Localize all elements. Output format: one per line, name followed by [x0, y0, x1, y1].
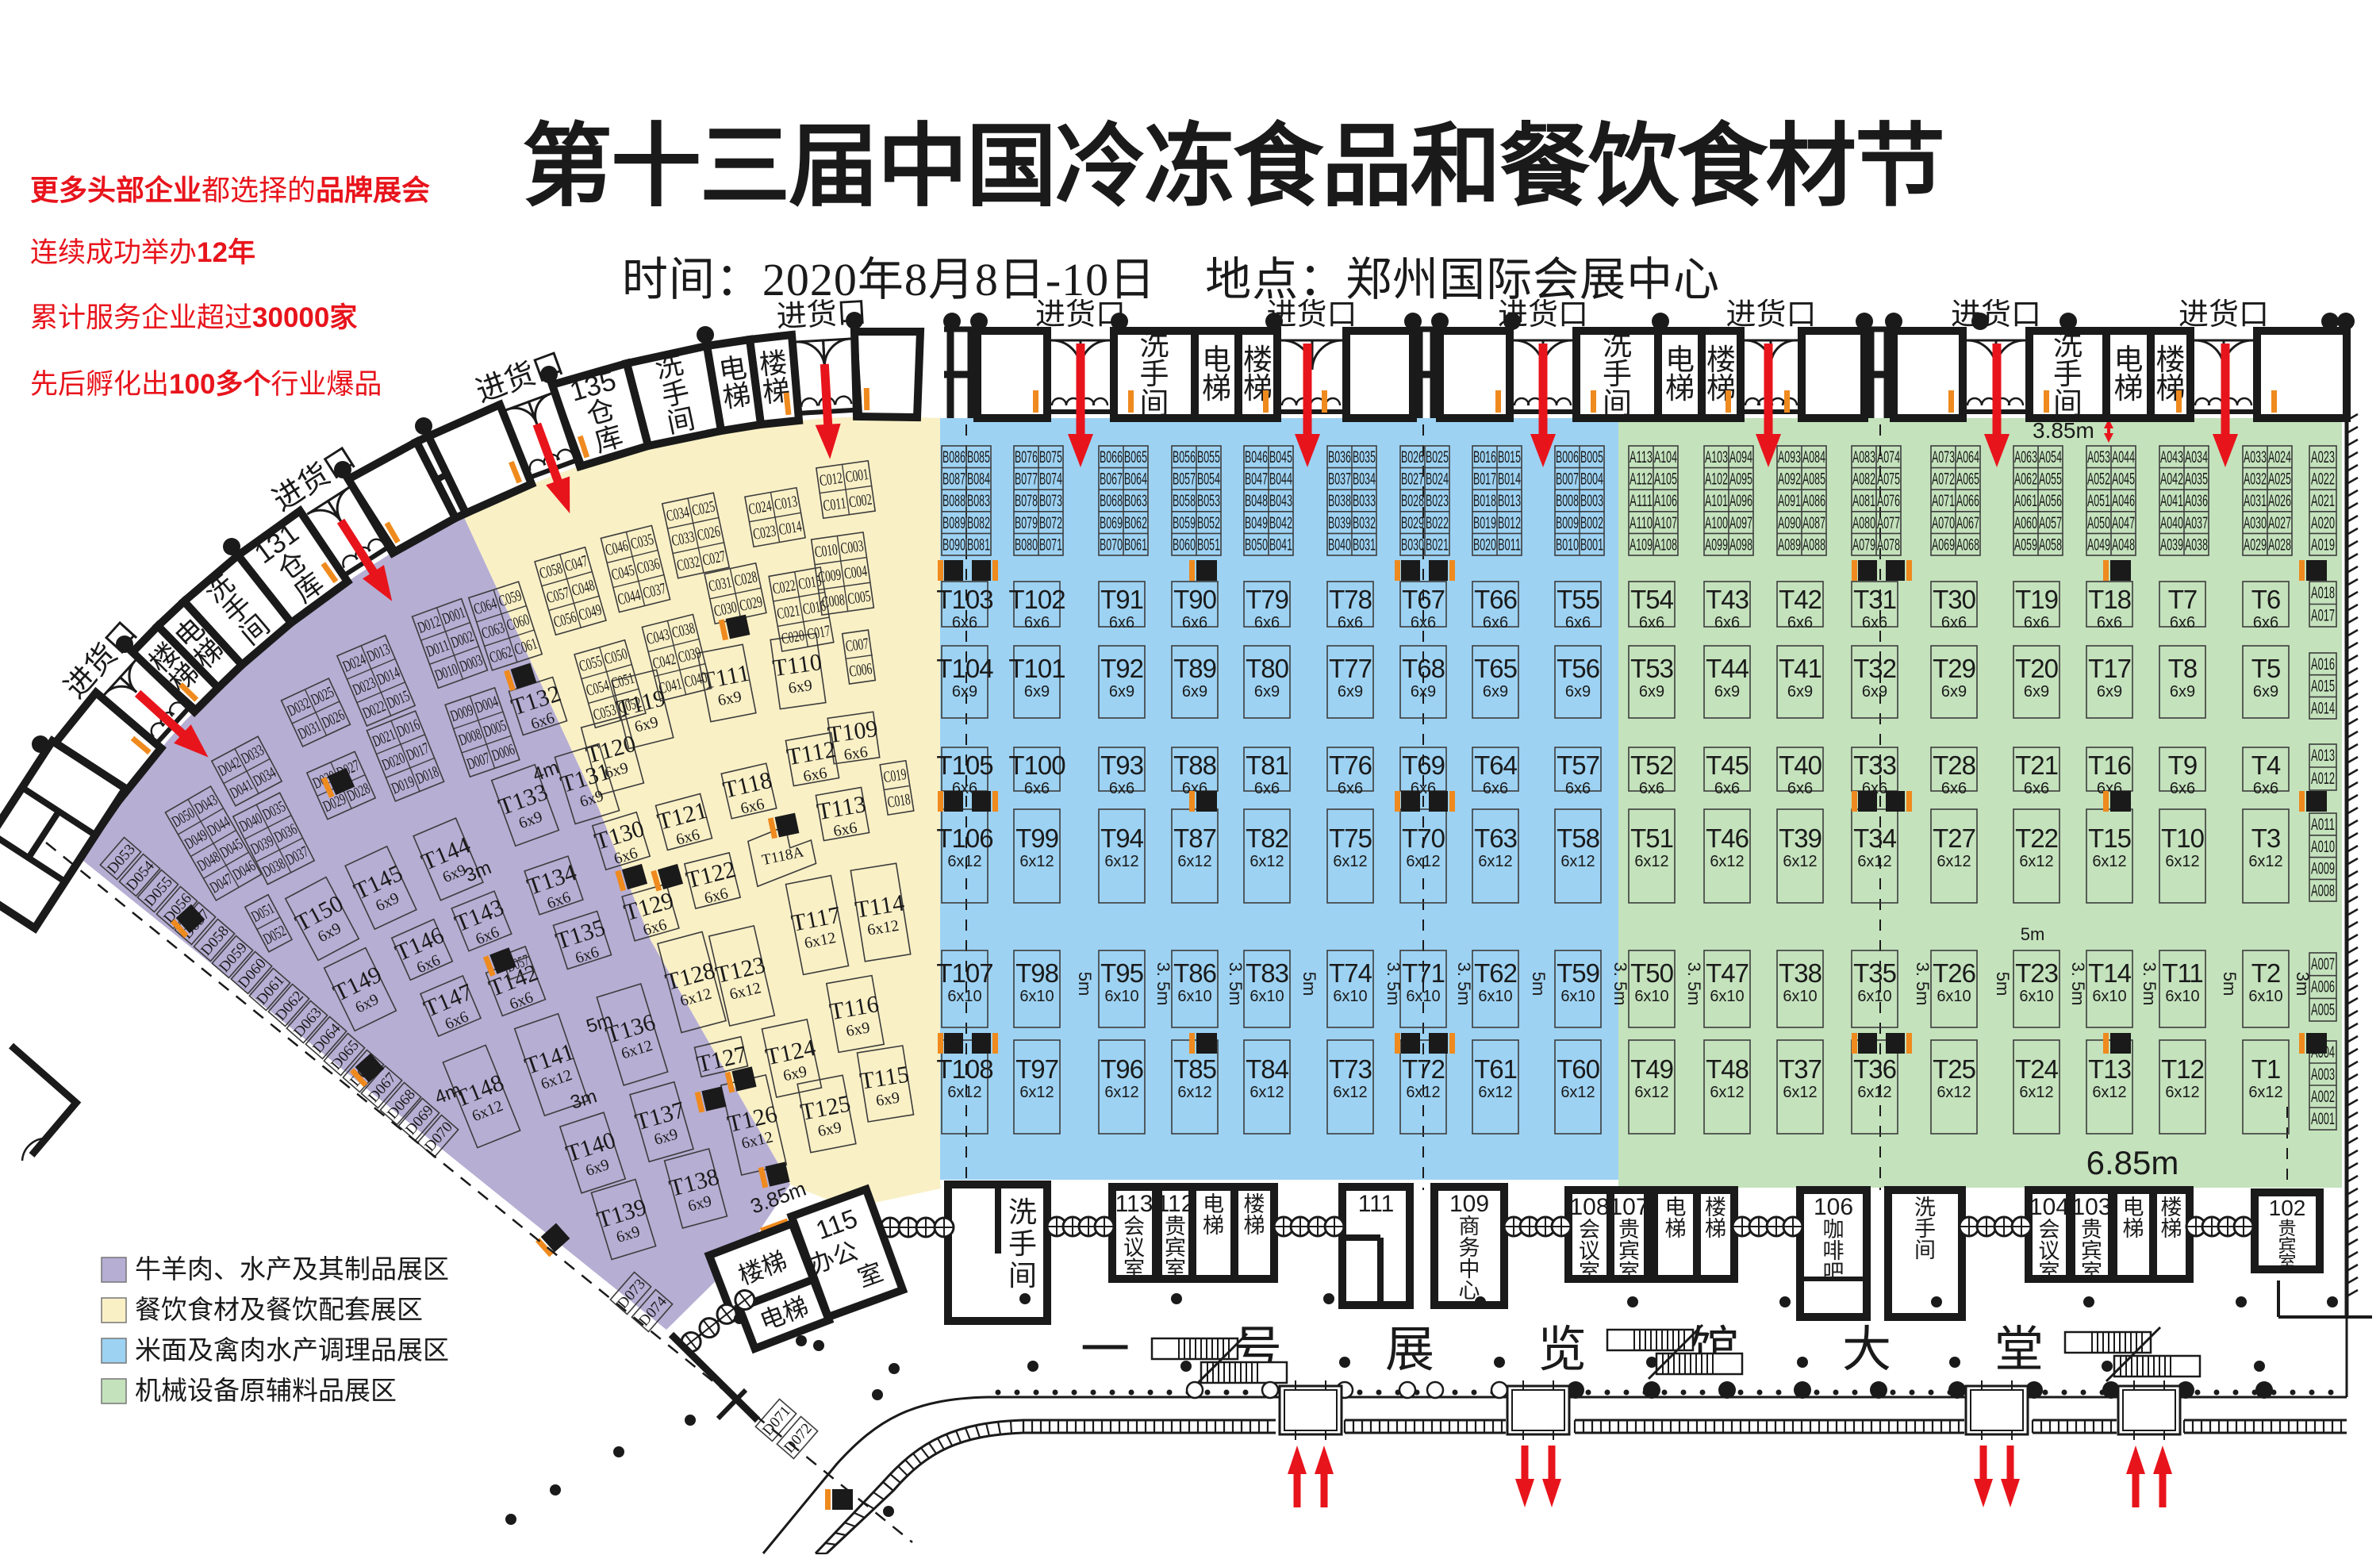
svg-text:洗: 洗: [2053, 328, 2082, 361]
svg-text:B052: B052: [1197, 514, 1220, 532]
svg-text:A048: A048: [2112, 536, 2135, 554]
svg-text:B077: B077: [1015, 470, 1038, 489]
svg-text:6x6: 6x6: [2170, 614, 2195, 632]
svg-text:B073: B073: [1039, 492, 1062, 510]
svg-text:T94: T94: [1100, 824, 1144, 853]
svg-text:T22: T22: [2015, 824, 2058, 853]
svg-text:6x12: 6x12: [1406, 1084, 1440, 1101]
svg-text:T20: T20: [2015, 654, 2059, 683]
svg-text:C007: C007: [845, 635, 870, 655]
svg-text:B037: B037: [1328, 470, 1351, 489]
svg-text:梯: 梯: [1705, 1217, 1726, 1241]
svg-text:A017: A017: [2311, 607, 2335, 625]
svg-text:6x6: 6x6: [1254, 614, 1280, 632]
svg-text:5m: 5m: [1299, 972, 1319, 996]
svg-text:T108: T108: [936, 1054, 992, 1084]
svg-text:106: 106: [1814, 1194, 1853, 1220]
svg-text:A083: A083: [1852, 448, 1875, 466]
svg-text:啡: 啡: [1823, 1239, 1844, 1263]
svg-text:T7: T7: [2168, 585, 2198, 614]
svg-text:T65: T65: [1474, 654, 1517, 683]
svg-text:A066: A066: [1956, 492, 1979, 510]
svg-text:A018: A018: [2311, 584, 2335, 602]
svg-text:C006: C006: [848, 660, 873, 681]
svg-text:B083: B083: [967, 492, 990, 510]
svg-text:6x12: 6x12: [1710, 1084, 1744, 1101]
svg-text:6x9: 6x9: [1109, 683, 1134, 701]
svg-text:A071: A071: [1932, 492, 1955, 510]
svg-text:T21: T21: [2015, 751, 2058, 780]
svg-text:6x10: 6x10: [2019, 988, 2053, 1005]
svg-text:6x6: 6x6: [1941, 780, 1967, 797]
svg-text:A073: A073: [1932, 448, 1955, 466]
svg-text:第十三届中国冷冻食品和餐饮食材节: 第十三届中国冷冻食品和餐饮食材节: [522, 117, 1944, 217]
svg-text:6x12: 6x12: [2248, 853, 2282, 870]
svg-text:6x9: 6x9: [1639, 683, 1664, 701]
svg-text:T53: T53: [1630, 654, 1673, 683]
svg-text:T63: T63: [1474, 824, 1517, 853]
svg-text:6x6: 6x6: [2024, 614, 2049, 632]
svg-text:A024: A024: [2268, 448, 2291, 466]
svg-text:6x10: 6x10: [1560, 988, 1595, 1005]
svg-text:T107: T107: [936, 958, 992, 988]
svg-text:A101: A101: [1705, 492, 1728, 510]
svg-text:T27: T27: [1933, 824, 1975, 853]
svg-text:5m: 5m: [2021, 924, 2045, 944]
svg-text:洗: 洗: [1008, 1196, 1037, 1228]
svg-text:牛羊肉、水产及其制品展区: 牛羊肉、水产及其制品展区: [135, 1255, 449, 1284]
svg-text:A029: A029: [2244, 536, 2267, 554]
svg-text:A080: A080: [1852, 514, 1875, 532]
svg-text:B070: B070: [1100, 536, 1123, 554]
svg-text:T3: T3: [2251, 824, 2281, 853]
svg-text:T55: T55: [1557, 585, 1599, 614]
svg-text:6x12: 6x12: [1478, 1084, 1512, 1101]
svg-text:议: 议: [2039, 1239, 2060, 1263]
svg-text:B014: B014: [1498, 470, 1521, 489]
svg-text:宾: 宾: [1165, 1236, 1186, 1260]
svg-text:T51: T51: [1630, 824, 1673, 853]
svg-text:梯: 梯: [720, 379, 752, 414]
svg-text:A092: A092: [1778, 470, 1801, 489]
svg-text:B056: B056: [1173, 448, 1196, 466]
svg-text:时间：2020年8月8日-10日 地点：郑州国际会展中: 时间：2020年8月8日-10日 地点：郑州国际会展中心: [622, 254, 1720, 305]
svg-text:A100: A100: [1705, 514, 1728, 532]
svg-text:B012: B012: [1498, 514, 1521, 532]
svg-text:A098: A098: [1729, 536, 1752, 554]
svg-text:B031: B031: [1353, 536, 1376, 554]
svg-text:室: 室: [1123, 1257, 1145, 1281]
svg-text:T28: T28: [1933, 751, 1975, 780]
svg-text:5m: 5m: [1529, 972, 1549, 996]
svg-text:A086: A086: [1802, 492, 1825, 510]
svg-text:A044: A044: [2112, 448, 2135, 466]
svg-text:6x12: 6x12: [1019, 1084, 1054, 1101]
svg-text:6x12: 6x12: [1177, 853, 1211, 870]
svg-text:A050: A050: [2087, 514, 2110, 532]
svg-text:间: 间: [2053, 387, 2082, 420]
svg-text:B078: B078: [1015, 492, 1038, 510]
svg-text:A011: A011: [2311, 816, 2335, 834]
svg-text:3. 5m: 3. 5m: [1454, 962, 1474, 1005]
svg-text:B069: B069: [1100, 514, 1123, 532]
svg-text:楼: 楼: [1705, 1196, 1726, 1219]
svg-text:A036: A036: [2185, 492, 2208, 510]
svg-text:A104: A104: [1654, 448, 1677, 466]
svg-text:室: 室: [2039, 1261, 2060, 1284]
svg-text:6x6: 6x6: [1411, 614, 1436, 632]
svg-text:6x9: 6x9: [1787, 683, 1813, 701]
svg-text:T14: T14: [2088, 958, 2132, 988]
svg-text:洗: 洗: [1603, 328, 1632, 361]
svg-text:室: 室: [1618, 1261, 1640, 1284]
svg-text:T34: T34: [1853, 824, 1897, 853]
svg-text:A065: A065: [1956, 470, 1979, 489]
svg-text:T77: T77: [1329, 654, 1372, 683]
svg-text:B080: B080: [1015, 536, 1038, 554]
svg-text:6x10: 6x10: [1710, 988, 1744, 1005]
svg-text:6x9: 6x9: [1565, 683, 1591, 701]
svg-text:B071: B071: [1039, 536, 1062, 554]
svg-text:B049: B049: [1245, 514, 1268, 532]
svg-text:B042: B042: [1269, 514, 1292, 532]
svg-text:C018: C018: [886, 791, 912, 812]
svg-text:堂: 堂: [1994, 1323, 2044, 1377]
svg-text:A028: A028: [2268, 536, 2291, 554]
svg-text:102: 102: [2269, 1196, 2306, 1220]
svg-text:梯: 梯: [1203, 1214, 1224, 1238]
svg-text:104: 104: [2029, 1194, 2069, 1220]
svg-text:A112: A112: [1630, 470, 1653, 489]
svg-text:A022: A022: [2311, 470, 2335, 489]
svg-text:6x9: 6x9: [1714, 683, 1740, 701]
svg-text:6x12: 6x12: [1937, 853, 1971, 870]
svg-text:A051: A051: [2087, 492, 2110, 510]
svg-text:6x12: 6x12: [1937, 1084, 1971, 1101]
svg-text:A032: A032: [2244, 470, 2267, 489]
svg-text:B060: B060: [1173, 536, 1196, 554]
svg-text:T32: T32: [1853, 654, 1896, 683]
svg-text:贵: 贵: [2081, 1218, 2102, 1242]
svg-text:A106: A106: [1654, 492, 1677, 510]
svg-text:T98: T98: [1015, 958, 1058, 988]
svg-text:6x6: 6x6: [2097, 614, 2122, 632]
svg-text:T50: T50: [1630, 958, 1674, 988]
svg-text:6x12: 6x12: [1634, 853, 1668, 870]
svg-text:T69: T69: [1402, 751, 1445, 780]
svg-text:A067: A067: [1956, 514, 1979, 532]
svg-text:C019: C019: [882, 766, 908, 786]
svg-text:A072: A072: [1932, 470, 1955, 489]
svg-text:机械设备原辅料品展区: 机械设备原辅料品展区: [135, 1376, 397, 1406]
svg-text:B021: B021: [1426, 536, 1449, 554]
svg-text:A005: A005: [2311, 1000, 2335, 1019]
svg-text:6x9: 6x9: [787, 677, 813, 697]
svg-text:6x12: 6x12: [1857, 1084, 1891, 1101]
svg-text:T38: T38: [1779, 958, 1821, 988]
svg-text:T4: T4: [2251, 751, 2281, 780]
svg-text:B020: B020: [1473, 536, 1496, 554]
svg-text:3. 5m: 3. 5m: [2068, 962, 2088, 1005]
svg-text:T66: T66: [1474, 585, 1517, 614]
svg-text:6x12: 6x12: [947, 1084, 981, 1101]
svg-text:6x10: 6x10: [1406, 988, 1440, 1005]
svg-text:3. 5m: 3. 5m: [1913, 962, 1933, 1005]
svg-text:B026: B026: [1401, 448, 1424, 466]
svg-text:T30: T30: [1933, 585, 1976, 614]
svg-text:B009: B009: [1556, 514, 1579, 532]
svg-text:A111: A111: [1630, 492, 1653, 510]
svg-text:T26: T26: [1933, 958, 1975, 988]
svg-text:B045: B045: [1269, 448, 1292, 466]
svg-text:楼: 楼: [1243, 344, 1273, 376]
svg-text:6x6: 6x6: [1338, 614, 1363, 632]
svg-text:111: 111: [1358, 1191, 1395, 1217]
svg-text:B025: B025: [1426, 448, 1449, 466]
svg-text:6x6: 6x6: [1941, 614, 1967, 632]
svg-text:T9: T9: [2168, 751, 2198, 780]
svg-text:6x10: 6x10: [1177, 988, 1211, 1005]
svg-text:6x6: 6x6: [1109, 780, 1134, 797]
svg-text:B043: B043: [1269, 492, 1292, 510]
svg-text:T56: T56: [1557, 654, 1599, 683]
svg-text:6x12: 6x12: [1104, 1084, 1138, 1101]
svg-text:A030: A030: [2244, 514, 2267, 532]
svg-text:洗: 洗: [1140, 328, 1169, 361]
svg-text:T44: T44: [1706, 654, 1749, 683]
svg-text:电: 电: [2123, 1196, 2144, 1219]
svg-text:6x12: 6x12: [1560, 853, 1595, 870]
svg-text:电: 电: [1202, 344, 1231, 376]
svg-text:3. 5m: 3. 5m: [1610, 962, 1630, 1005]
svg-text:A075: A075: [1877, 470, 1900, 489]
svg-text:A042: A042: [2160, 470, 2183, 489]
svg-text:楼: 楼: [2156, 344, 2186, 376]
svg-text:务: 务: [1459, 1236, 1480, 1260]
svg-text:A090: A090: [1778, 514, 1801, 532]
svg-text:6x12: 6x12: [1019, 853, 1054, 870]
svg-text:6x6: 6x6: [1338, 780, 1363, 797]
svg-text:6x9: 6x9: [2024, 683, 2049, 701]
svg-text:T84: T84: [1246, 1054, 1289, 1084]
svg-text:B040: B040: [1328, 536, 1351, 554]
svg-text:6x10: 6x10: [2165, 988, 2199, 1005]
svg-text:B046: B046: [1245, 448, 1268, 466]
svg-text:A010: A010: [2311, 838, 2335, 856]
svg-text:6x12: 6x12: [947, 853, 981, 870]
svg-text:B033: B033: [1353, 492, 1376, 510]
svg-text:B041: B041: [1269, 536, 1292, 554]
svg-text:B002: B002: [1580, 514, 1603, 532]
svg-text:6x12: 6x12: [1406, 853, 1440, 870]
svg-text:6x6: 6x6: [952, 614, 977, 632]
svg-text:室: 室: [2278, 1252, 2297, 1273]
svg-text:A078: A078: [1877, 536, 1900, 554]
svg-text:T54: T54: [1630, 585, 1674, 614]
svg-text:6x9: 6x9: [952, 683, 977, 701]
svg-text:T71: T71: [1402, 958, 1445, 988]
svg-text:3m: 3m: [2293, 972, 2313, 996]
svg-text:B003: B003: [1580, 492, 1603, 510]
svg-text:B087: B087: [942, 470, 965, 489]
svg-text:T70: T70: [1402, 824, 1445, 853]
svg-text:T97: T97: [1015, 1054, 1058, 1084]
svg-text:A045: A045: [2112, 470, 2135, 489]
svg-text:6x10: 6x10: [1857, 988, 1891, 1005]
svg-text:议: 议: [1123, 1236, 1145, 1260]
svg-text:A108: A108: [1654, 536, 1677, 554]
svg-text:C001: C001: [844, 466, 869, 486]
svg-text:B076: B076: [1015, 448, 1038, 466]
svg-text:6x12: 6x12: [2165, 1084, 2199, 1101]
svg-text:A091: A091: [1778, 492, 1801, 510]
svg-text:B005: B005: [1580, 448, 1603, 466]
svg-text:B085: B085: [967, 448, 990, 466]
svg-text:C005: C005: [846, 587, 872, 608]
svg-text:间: 间: [1603, 387, 1632, 420]
svg-text:5m: 5m: [1075, 972, 1095, 996]
svg-text:A058: A058: [2039, 536, 2062, 554]
svg-text:T85: T85: [1173, 1054, 1216, 1084]
svg-text:米面及禽肉水产调理品展区: 米面及禽肉水产调理品展区: [135, 1336, 449, 1365]
svg-text:6x12: 6x12: [1560, 1084, 1595, 1101]
svg-text:B068: B068: [1100, 492, 1123, 510]
svg-text:T43: T43: [1706, 585, 1749, 614]
svg-text:A026: A026: [2268, 492, 2291, 510]
svg-text:6x6: 6x6: [1639, 780, 1664, 797]
svg-text:T8: T8: [2168, 654, 2198, 683]
svg-text:6x9: 6x9: [1941, 683, 1967, 701]
svg-text:手: 手: [1008, 1227, 1037, 1260]
svg-text:T72: T72: [1402, 1054, 1445, 1084]
svg-text:A014: A014: [2311, 699, 2335, 717]
svg-text:电: 电: [1203, 1192, 1224, 1216]
svg-text:餐饮食材及餐饮配套展区: 餐饮食材及餐饮配套展区: [135, 1296, 423, 1325]
svg-text:T39: T39: [1779, 824, 1821, 853]
svg-text:A084: A084: [1802, 448, 1825, 466]
svg-text:一: 一: [1081, 1323, 1130, 1377]
svg-text:B007: B007: [1556, 470, 1579, 489]
svg-text:T104: T104: [936, 654, 993, 683]
svg-text:T10: T10: [2161, 824, 2205, 853]
svg-text:6x10: 6x10: [1937, 988, 1971, 1005]
svg-text:B016: B016: [1473, 448, 1496, 466]
svg-text:A113: A113: [1630, 448, 1653, 466]
svg-text:T60: T60: [1557, 1054, 1600, 1084]
svg-text:A001: A001: [2311, 1110, 2335, 1128]
svg-text:6x12: 6x12: [1783, 1084, 1817, 1101]
svg-text:T95: T95: [1100, 958, 1143, 988]
svg-text:B063: B063: [1124, 492, 1147, 510]
svg-text:6x12: 6x12: [1783, 853, 1817, 870]
svg-text:T31: T31: [1853, 585, 1896, 614]
svg-text:电: 电: [2114, 344, 2144, 376]
svg-text:洗: 洗: [1914, 1196, 1936, 1219]
svg-text:手: 手: [1603, 358, 1632, 390]
svg-text:A059: A059: [2014, 536, 2037, 554]
svg-text:6x9: 6x9: [2097, 683, 2122, 701]
svg-text:A063: A063: [2014, 448, 2037, 466]
svg-text:A054: A054: [2039, 448, 2062, 466]
svg-text:B061: B061: [1124, 536, 1147, 554]
svg-text:贵: 贵: [1618, 1218, 1640, 1242]
svg-text:梯: 梯: [1202, 372, 1231, 405]
svg-text:A077: A077: [1877, 514, 1900, 532]
svg-text:间: 间: [1008, 1259, 1037, 1292]
svg-text:6x10: 6x10: [1783, 988, 1817, 1005]
svg-text:T87: T87: [1173, 824, 1216, 853]
svg-text:C012: C012: [819, 470, 844, 490]
svg-text:B086: B086: [942, 448, 965, 466]
svg-text:A023: A023: [2311, 448, 2335, 466]
svg-text:6x9: 6x9: [1862, 683, 1887, 701]
svg-text:6x9: 6x9: [1483, 683, 1508, 701]
svg-text:B082: B082: [967, 514, 990, 532]
svg-text:T73: T73: [1329, 1054, 1372, 1084]
svg-text:T103: T103: [936, 585, 992, 614]
svg-text:T12: T12: [2161, 1054, 2204, 1084]
svg-text:手: 手: [1140, 358, 1169, 390]
svg-text:B001: B001: [1580, 536, 1603, 554]
svg-text:6x12: 6x12: [1634, 1084, 1668, 1101]
svg-text:B028: B028: [1401, 492, 1424, 510]
svg-text:6x12: 6x12: [1857, 853, 1891, 870]
svg-text:A046: A046: [2112, 492, 2135, 510]
svg-text:T76: T76: [1329, 751, 1372, 780]
svg-text:B018: B018: [1473, 492, 1496, 510]
svg-text:T23: T23: [2015, 958, 2058, 988]
svg-text:T62: T62: [1474, 958, 1517, 988]
svg-text:B065: B065: [1124, 448, 1147, 466]
svg-text:6x6: 6x6: [1565, 614, 1591, 632]
svg-text:B053: B053: [1197, 492, 1220, 510]
svg-text:A056: A056: [2039, 492, 2062, 510]
svg-text:室: 室: [1165, 1257, 1186, 1281]
svg-text:T13: T13: [2088, 1054, 2131, 1084]
svg-text:T42: T42: [1779, 585, 1821, 614]
svg-text:B017: B017: [1473, 470, 1496, 489]
svg-text:T19: T19: [2015, 585, 2058, 614]
svg-text:A068: A068: [1956, 536, 1979, 554]
svg-text:A082: A082: [1852, 470, 1875, 489]
svg-text:6x12: 6x12: [1249, 853, 1284, 870]
svg-text:3. 5m: 3. 5m: [1384, 962, 1403, 1005]
svg-text:6x12: 6x12: [2019, 853, 2053, 870]
svg-text:103: 103: [2071, 1194, 2111, 1220]
svg-text:A053: A053: [2087, 448, 2110, 466]
svg-text:室: 室: [1579, 1261, 1600, 1284]
svg-text:A007: A007: [2311, 955, 2335, 973]
svg-text:进货口: 进货口: [1725, 298, 1816, 332]
svg-text:A069: A069: [1932, 536, 1955, 554]
svg-text:T16: T16: [2088, 751, 2131, 780]
svg-text:B048: B048: [1245, 492, 1268, 510]
svg-text:T40: T40: [1779, 751, 1822, 780]
svg-text:6x10: 6x10: [1634, 988, 1668, 1005]
svg-text:6x9: 6x9: [2253, 683, 2278, 701]
svg-text:B075: B075: [1039, 448, 1062, 466]
svg-text:T83: T83: [1246, 958, 1288, 988]
svg-text:6x6: 6x6: [1639, 614, 1664, 632]
svg-text:6x12: 6x12: [1333, 853, 1367, 870]
svg-text:会: 会: [2039, 1218, 2060, 1242]
svg-text:A052: A052: [2087, 470, 2110, 489]
svg-text:A025: A025: [2268, 470, 2291, 489]
svg-text:T81: T81: [1246, 751, 1288, 780]
svg-text:A105: A105: [1654, 470, 1677, 489]
svg-text:A039: A039: [2160, 536, 2183, 554]
svg-text:T33: T33: [1853, 751, 1896, 780]
